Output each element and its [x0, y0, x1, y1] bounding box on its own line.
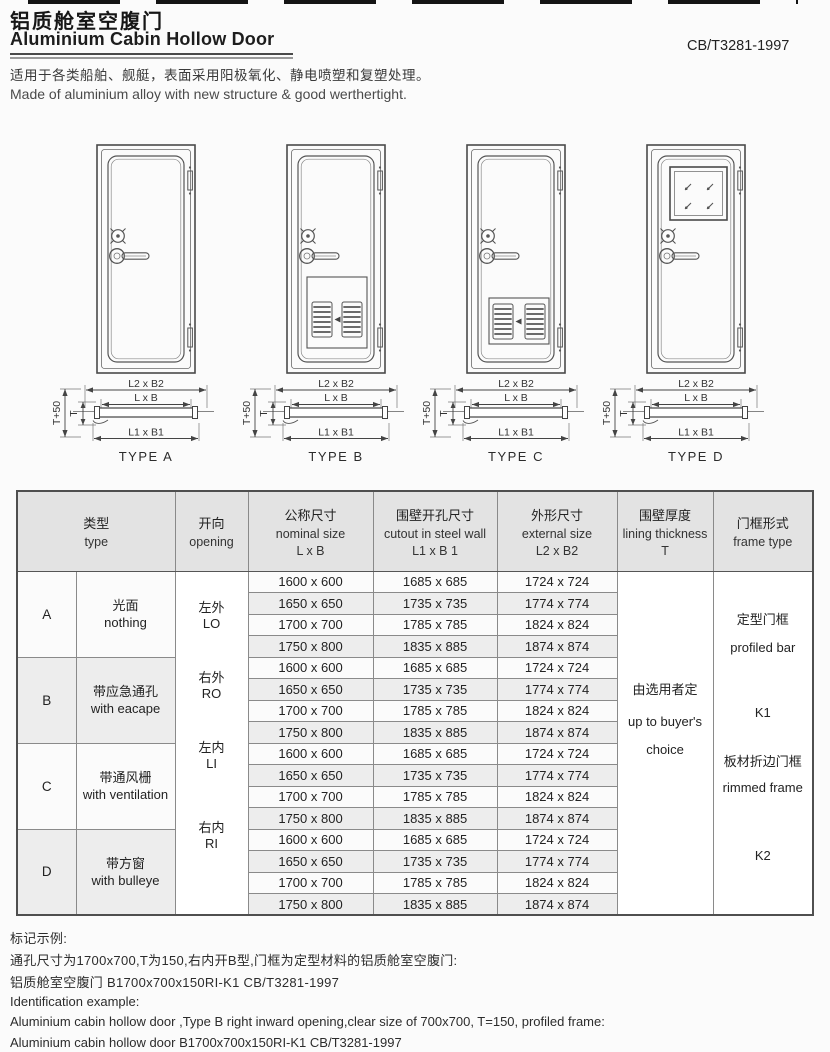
type-c-label: TYPE C	[488, 449, 544, 464]
type-letter-c: C	[17, 743, 76, 829]
nominal-size: 1600 x 600	[248, 743, 373, 765]
cutout-size: 1735 x 735	[373, 593, 497, 615]
header-external: 外形尺寸external sizeL2 x B2	[497, 491, 617, 571]
table-header-row: 类型type 开向opening 公称尺寸nominal sizeL x B 围…	[17, 491, 813, 571]
nominal-size: 1650 x 650	[248, 851, 373, 873]
nominal-size: 1600 x 600	[248, 829, 373, 851]
ventilation-louver	[489, 298, 549, 344]
note-cn-line2: 铝质舱室空腹门 B1700x700x150RI-K1 CB/T3281-1997	[10, 972, 339, 991]
door-diagram-type-a: TYPE A	[53, 140, 239, 472]
cutout-size: 1785 x 785	[373, 614, 497, 636]
cutout-size: 1735 x 735	[373, 765, 497, 787]
type-desc-b: 带应急通孔with eacape	[76, 657, 175, 743]
header-opening: 开向opening	[175, 491, 248, 571]
external-size: 1824 x 824	[497, 614, 617, 636]
header-nominal: 公称尺寸nominal sizeL x B	[248, 491, 373, 571]
description-english: Made of aluminium alloy with new structu…	[10, 86, 407, 102]
nominal-size: 1700 x 700	[248, 700, 373, 722]
cutout-size: 1785 x 785	[373, 700, 497, 722]
catalog-page: 铝质舱室空腹门 Aluminium Cabin Hollow Door CB/T…	[0, 0, 830, 1052]
nominal-size: 1650 x 650	[248, 765, 373, 787]
nominal-size: 1750 x 800	[248, 808, 373, 830]
frame-type-cell: 定型门框 profiled bar K1 板材折边门框 rimmed frame…	[713, 571, 813, 915]
opening-li: 左内LI	[176, 740, 248, 772]
cutout-size: 1835 x 885	[373, 894, 497, 916]
door-diagram-type-c: TYPE C	[423, 140, 609, 472]
external-size: 1724 x 724	[497, 657, 617, 679]
nominal-size: 1600 x 600	[248, 571, 373, 593]
cutout-size: 1785 x 785	[373, 872, 497, 894]
table-row: A 光面nothing 左外LO 右外RO 左内LI 右内RI 1600 x 6…	[17, 571, 813, 593]
type-letter-d: D	[17, 829, 76, 915]
type-d-label: TYPE D	[668, 449, 724, 464]
nominal-size: 1750 x 800	[248, 894, 373, 916]
external-size: 1724 x 724	[497, 743, 617, 765]
cutout-size: 1685 x 685	[373, 829, 497, 851]
note-cn-title: 标记示例:	[10, 928, 67, 947]
lining-thickness-cell: 由选用者定 up to buyer's choice	[617, 571, 713, 915]
note-cn-line1: 通孔尺寸为1700x700,T为150,右内开B型,门框为定型材料的铝质舱室空腹…	[10, 950, 457, 969]
door-diagram-type-d: TYPE D	[603, 140, 789, 472]
nominal-size: 1650 x 650	[248, 679, 373, 701]
door-diagram-type-b: TYPE B	[243, 140, 429, 472]
external-size: 1874 x 874	[497, 636, 617, 658]
description-chinese: 适用于各类船舶、舰艇，表面采用阳极氧化、静电喷塑和复塑处理。	[10, 64, 430, 84]
nominal-size: 1700 x 700	[248, 786, 373, 808]
header-cutout: 围壁开孔尺寸cutout in steel wallL1 x B 1	[373, 491, 497, 571]
external-size: 1774 x 774	[497, 851, 617, 873]
external-size: 1724 x 724	[497, 829, 617, 851]
nominal-size: 1750 x 800	[248, 636, 373, 658]
header-type: 类型type	[17, 491, 175, 571]
cutout-size: 1835 x 885	[373, 636, 497, 658]
standard-code: CB/T3281-1997	[687, 38, 789, 54]
type-desc-c: 带通风栅with ventilation	[76, 743, 175, 829]
opening-ro: 右外RO	[176, 670, 248, 702]
page-title-english: Aluminium Cabin Hollow Door	[10, 29, 274, 50]
nominal-size: 1650 x 650	[248, 593, 373, 615]
nominal-size: 1600 x 600	[248, 657, 373, 679]
nominal-size: 1750 x 800	[248, 722, 373, 744]
square-window	[670, 167, 727, 220]
opening-lo: 左外LO	[176, 600, 248, 632]
external-size: 1824 x 824	[497, 700, 617, 722]
type-letter-b: B	[17, 657, 76, 743]
type-a-label: TYPE A	[119, 449, 174, 464]
external-size: 1774 x 774	[497, 765, 617, 787]
type-desc-d: 带方窗with bulleye	[76, 829, 175, 915]
scan-edge-marks	[28, 0, 798, 4]
opening-ri: 右内RI	[176, 820, 248, 852]
note-en-line1: Aluminium cabin hollow door ,Type B righ…	[10, 1014, 605, 1029]
cutout-size: 1785 x 785	[373, 786, 497, 808]
cutout-size: 1735 x 735	[373, 851, 497, 873]
specification-table: 类型type 开向opening 公称尺寸nominal sizeL x B 围…	[16, 490, 814, 916]
header-lining: 围壁厚度lining thicknessT	[617, 491, 713, 571]
escape-panel	[307, 277, 367, 348]
cutout-size: 1835 x 885	[373, 722, 497, 744]
external-size: 1774 x 774	[497, 593, 617, 615]
type-desc-a: 光面nothing	[76, 571, 175, 657]
external-size: 1724 x 724	[497, 571, 617, 593]
note-en-title: Identification example:	[10, 994, 139, 1009]
external-size: 1824 x 824	[497, 872, 617, 894]
cutout-size: 1685 x 685	[373, 657, 497, 679]
opening-cell: 左外LO 右外RO 左内LI 右内RI	[175, 571, 248, 915]
external-size: 1874 x 874	[497, 894, 617, 916]
type-b-label: TYPE B	[308, 449, 363, 464]
nominal-size: 1700 x 700	[248, 614, 373, 636]
nominal-size: 1700 x 700	[248, 872, 373, 894]
cutout-size: 1835 x 885	[373, 808, 497, 830]
external-size: 1774 x 774	[497, 679, 617, 701]
cutout-size: 1685 x 685	[373, 571, 497, 593]
external-size: 1824 x 824	[497, 786, 617, 808]
external-size: 1874 x 874	[497, 722, 617, 744]
header-frame: 门框形式frame type	[713, 491, 813, 571]
title-underline	[10, 53, 293, 59]
external-size: 1874 x 874	[497, 808, 617, 830]
type-letter-a: A	[17, 571, 76, 657]
note-en-line2: Aluminium cabin hollow door B1700x700x15…	[10, 1035, 402, 1050]
cutout-size: 1735 x 735	[373, 679, 497, 701]
cutout-size: 1685 x 685	[373, 743, 497, 765]
